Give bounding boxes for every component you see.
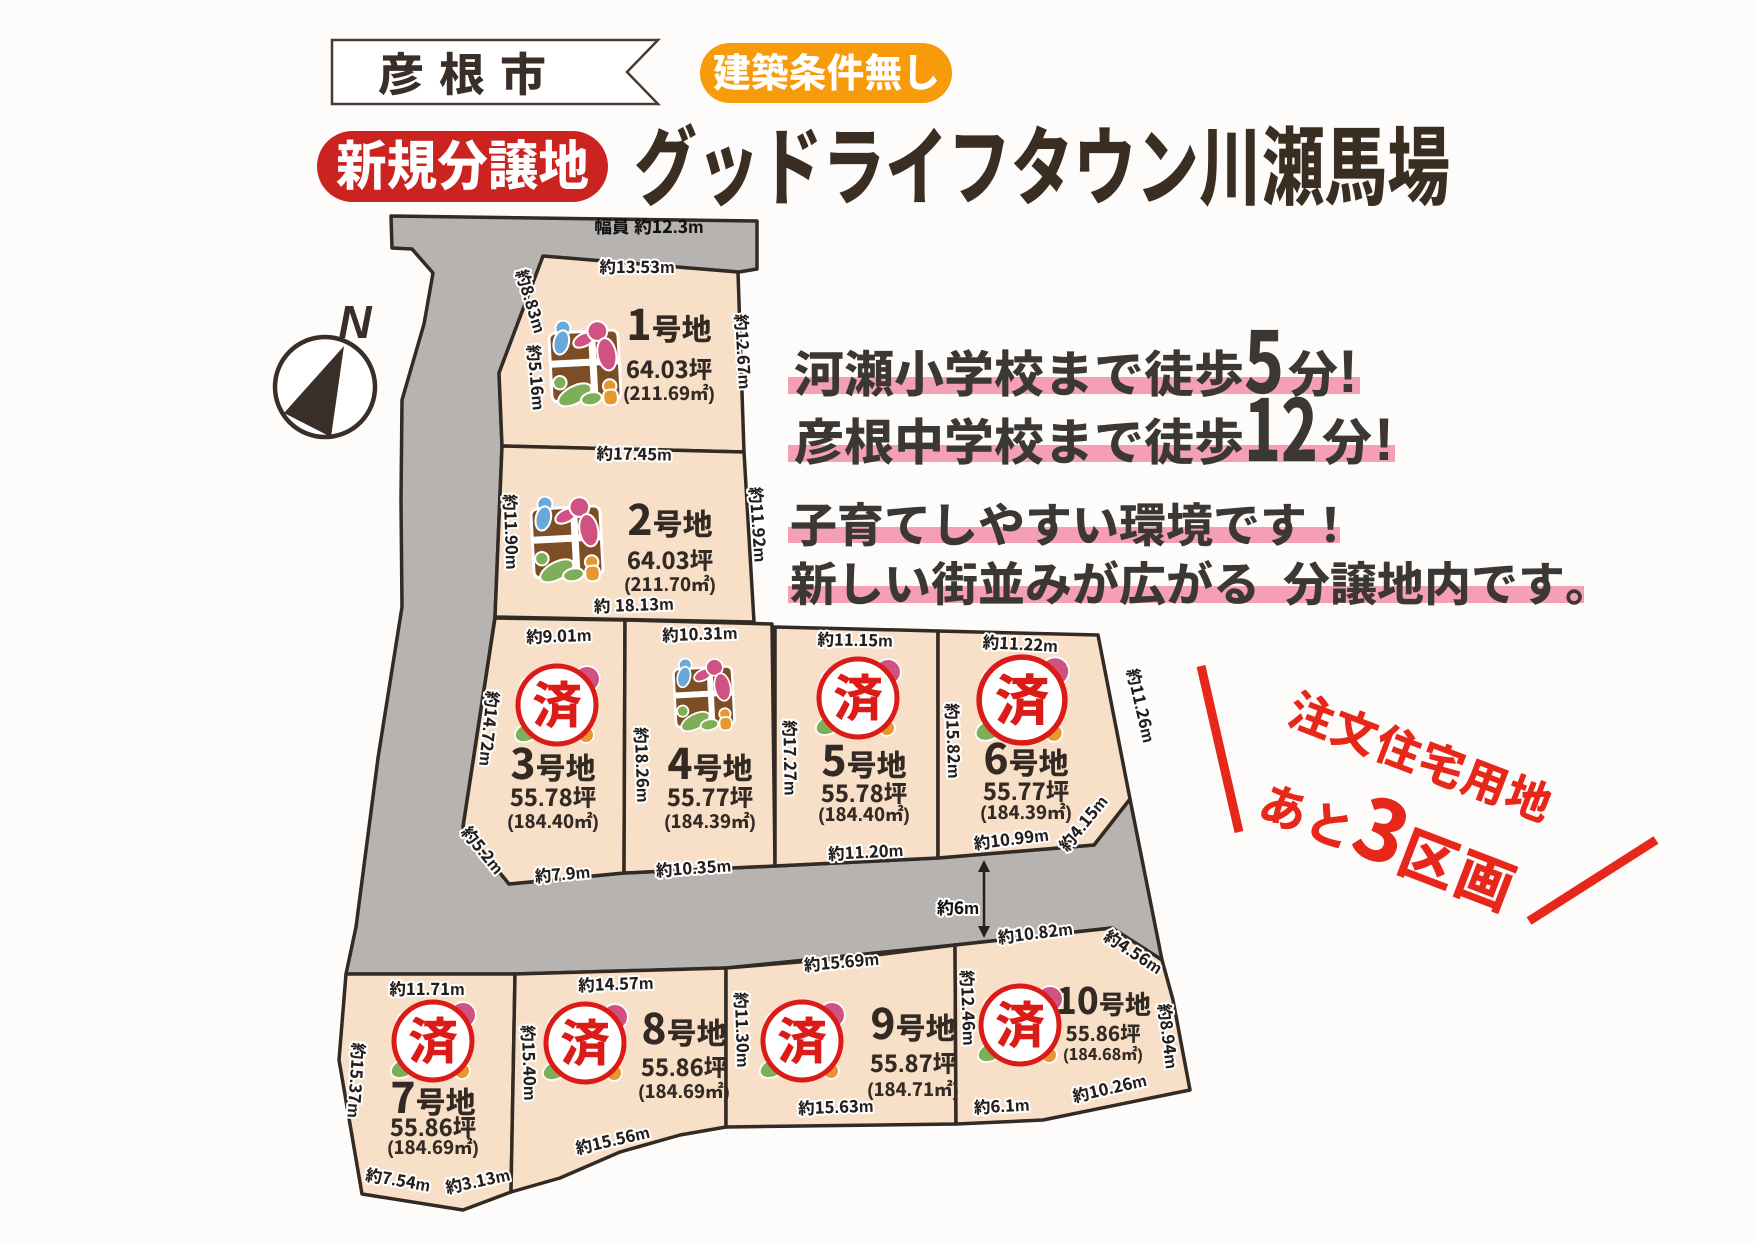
svg-text:約11.20m: 約11.20m <box>827 837 903 865</box>
svg-text:約12.46m: 約12.46m <box>956 970 983 1046</box>
svg-text:!: ! <box>1338 323 1358 410</box>
svg-text:グッドライフタウン川瀬馬場: グッドライフタウン川瀬馬場 <box>634 98 1450 223</box>
svg-text:彦根市: 彦根市 <box>378 39 546 105</box>
svg-text:(184.39㎡): (184.39㎡) <box>664 808 755 834</box>
svg-text:(184.40㎡): (184.40㎡) <box>818 801 909 827</box>
svg-text:約18.26m: 約18.26m <box>630 727 657 803</box>
svg-text:幅員 約12.3m: 幅員 約12.3m <box>594 214 703 239</box>
svg-text:!: ! <box>1374 391 1394 478</box>
svg-text:(184.69㎡): (184.69㎡) <box>387 1134 478 1160</box>
svg-text:建築条件無し: 建築条件無し <box>713 41 940 99</box>
svg-text:約11.71m: 約11.71m <box>389 976 464 1000</box>
svg-text:新規分譲地: 新規分譲地 <box>336 122 589 201</box>
svg-text:彦根中学校まで徒歩: 彦根中学校まで徒歩 <box>794 403 1244 475</box>
svg-text:(184.68㎡): (184.68㎡) <box>1063 1041 1142 1065</box>
svg-text:N: N <box>338 286 372 352</box>
svg-text:新しい街並みが広がる分譲地内です。: 新しい街並みが広がる分譲地内です。 <box>790 546 1612 615</box>
svg-text:約17.27m: 約17.27m <box>778 720 803 796</box>
svg-text:約 18.13m: 約 18.13m <box>593 591 674 618</box>
svg-text:(184.40㎡): (184.40㎡) <box>507 808 598 834</box>
svg-text:(184.69㎡): (184.69㎡) <box>638 1078 729 1104</box>
svg-text:約11.15m: 約11.15m <box>817 626 893 651</box>
svg-text:約9.01m: 約9.01m <box>526 622 592 648</box>
svg-text:約6.1m: 約6.1m <box>973 1092 1030 1119</box>
svg-text:(211.69㎡): (211.69㎡) <box>623 380 714 406</box>
svg-text:約15.40m: 約15.40m <box>517 1025 544 1101</box>
svg-text:約17.45m: 約17.45m <box>596 440 672 465</box>
svg-text:約10.31m: 約10.31m <box>662 620 738 647</box>
svg-text:約13.53m: 約13.53m <box>599 254 674 278</box>
svg-text:12: 12 <box>1244 363 1318 486</box>
svg-text:分: 分 <box>1322 403 1372 475</box>
svg-text:約15.63m: 約15.63m <box>798 1093 874 1120</box>
svg-text:(184.39㎡): (184.39㎡) <box>980 799 1071 825</box>
svg-text:約11.22m: 約11.22m <box>982 629 1058 657</box>
svg-text:約15.82m: 約15.82m <box>941 703 968 779</box>
svg-text:約6m: 約6m <box>937 894 979 919</box>
svg-text:(184.71㎡): (184.71㎡) <box>867 1076 958 1102</box>
svg-text:河瀬小学校まで徒歩: 河瀬小学校まで徒歩 <box>794 335 1244 407</box>
svg-text:約12.67m: 約12.67m <box>730 313 758 389</box>
svg-text:約7.9m: 約7.9m <box>534 859 591 888</box>
svg-text:55.87坪: 55.87坪 <box>870 1045 956 1079</box>
svg-text:約11.30m: 約11.30m <box>730 992 757 1068</box>
svg-text:約11.90m: 約11.90m <box>499 494 526 570</box>
svg-text:約14.57m: 約14.57m <box>578 970 654 997</box>
